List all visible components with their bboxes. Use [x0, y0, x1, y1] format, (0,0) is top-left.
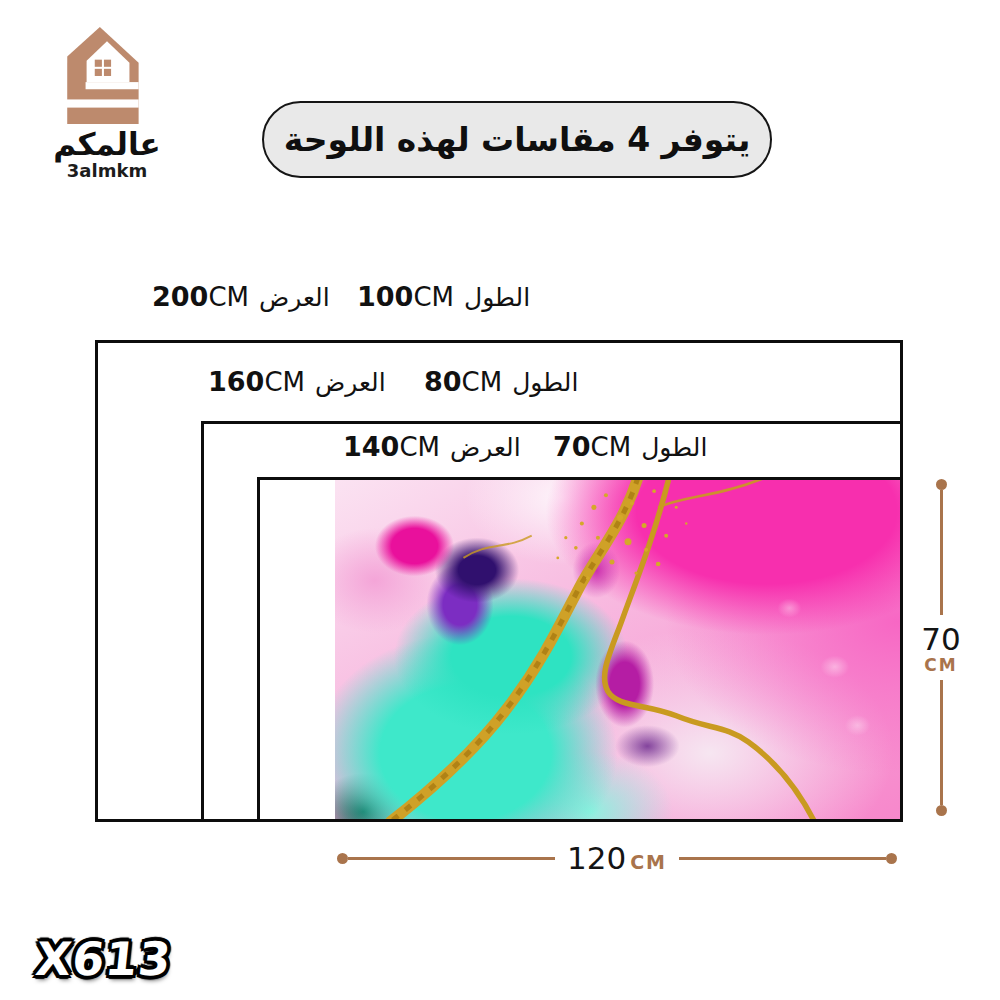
dimension-line [940, 680, 943, 805]
size-width-value: 200 [152, 281, 208, 312]
dimension-endpoint-dot [936, 479, 947, 490]
sizes-available-banner: يتوفر 4 مقاسات لهذه اللوحة [262, 101, 772, 178]
banner-text: يتوفر 4 مقاسات لهذه اللوحة [284, 120, 751, 159]
height-dimension-text: 70 CM [921, 621, 960, 674]
size-length-word: الطول [464, 283, 530, 312]
dimension-line [940, 490, 943, 615]
size-length-value: 100 [357, 281, 413, 312]
dimension-line [348, 857, 555, 860]
size-label-width-200: 200CMالعرض [152, 281, 330, 312]
page-root: عالمكم 3almkm يتوفر 4 مقاسات لهذه اللوحة… [0, 0, 1000, 1000]
house-icon [61, 26, 153, 128]
size-length-unit: CM [413, 282, 454, 312]
dimension-endpoint-dot [337, 853, 348, 864]
dimension-line [679, 857, 886, 860]
width-dimension-text: 120 CM [567, 840, 667, 876]
dimension-endpoint-dot [886, 853, 897, 864]
height-dimension-marker: 70 CM [924, 479, 958, 816]
size-width-unit: CM [208, 282, 249, 312]
dimension-endpoint-dot [936, 805, 947, 816]
width-value: 120 [567, 840, 626, 876]
size-width-word: العرض [259, 283, 330, 312]
size-label-length-100: 100CMالطول [357, 281, 530, 312]
brand-logo: عالمكم 3almkm [48, 26, 166, 180]
height-value: 70 [921, 621, 960, 657]
brand-name-latin: 3almkm [48, 162, 166, 180]
size-outline-140x70 [257, 477, 903, 822]
width-unit: CM [630, 851, 667, 873]
width-dimension-marker: 120 CM [337, 841, 897, 875]
brand-name-arabic: عالمكم [48, 128, 166, 161]
product-code: X613 [33, 932, 174, 986]
height-unit: CM [924, 657, 957, 674]
